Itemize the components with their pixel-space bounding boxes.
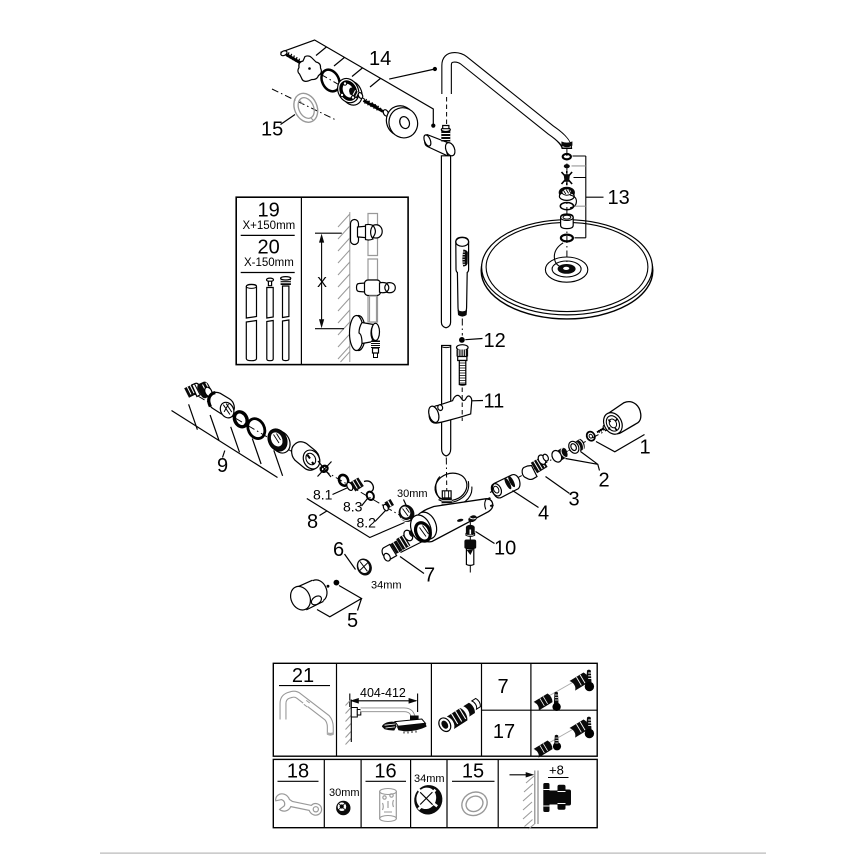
svg-text:21: 21 xyxy=(292,665,314,687)
svg-text:4: 4 xyxy=(538,503,549,525)
svg-text:X-150mm: X-150mm xyxy=(244,257,294,269)
svg-text:8: 8 xyxy=(307,511,318,533)
svg-text:9: 9 xyxy=(217,455,228,477)
svg-text:5: 5 xyxy=(347,610,358,632)
svg-text:14: 14 xyxy=(369,48,391,70)
svg-text:34mm: 34mm xyxy=(371,580,402,592)
svg-text:7: 7 xyxy=(424,565,435,587)
svg-text:12: 12 xyxy=(484,330,506,352)
svg-text:1: 1 xyxy=(640,437,651,459)
svg-text:3: 3 xyxy=(569,489,580,511)
svg-text:X: X xyxy=(317,274,327,291)
svg-text:404-412: 404-412 xyxy=(360,686,406,700)
svg-text:8.2: 8.2 xyxy=(357,515,377,531)
svg-text:30mm: 30mm xyxy=(397,488,428,500)
svg-text:6: 6 xyxy=(333,539,344,561)
svg-text:8.3: 8.3 xyxy=(343,499,363,515)
svg-text:18: 18 xyxy=(287,761,309,783)
svg-text:X+150mm: X+150mm xyxy=(243,220,296,232)
svg-text:11: 11 xyxy=(484,391,505,413)
svg-text:+8: +8 xyxy=(549,763,564,778)
svg-text:20: 20 xyxy=(258,237,280,259)
svg-text:10: 10 xyxy=(494,538,516,560)
svg-text:15: 15 xyxy=(462,761,484,783)
svg-text:30mm: 30mm xyxy=(329,787,360,799)
svg-text:2: 2 xyxy=(599,470,610,492)
svg-text:16: 16 xyxy=(374,761,396,783)
svg-text:8.1: 8.1 xyxy=(313,487,333,503)
svg-text:13: 13 xyxy=(608,187,630,209)
svg-text:34mm: 34mm xyxy=(414,773,445,785)
svg-text:19: 19 xyxy=(258,200,280,222)
svg-text:17: 17 xyxy=(493,721,515,743)
svg-text:15: 15 xyxy=(261,119,283,141)
svg-text:7: 7 xyxy=(497,676,508,698)
